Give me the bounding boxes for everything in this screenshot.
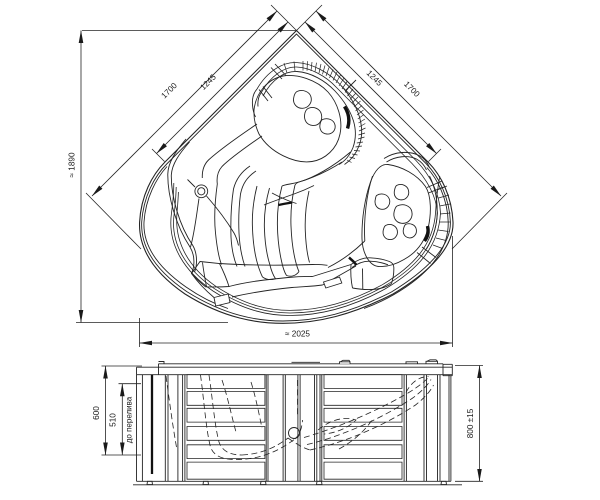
- svg-text:800 ±15: 800 ±15: [466, 408, 475, 438]
- svg-text:600: 600: [92, 406, 101, 420]
- svg-text:≈ 1890: ≈ 1890: [68, 152, 77, 177]
- svg-text:510: 510: [109, 413, 118, 427]
- svg-text:до перелива: до перелива: [125, 396, 134, 443]
- svg-text:1700: 1700: [160, 81, 180, 101]
- svg-text:1245: 1245: [199, 72, 219, 92]
- svg-text:1700: 1700: [402, 80, 422, 100]
- svg-text:1245: 1245: [365, 69, 385, 89]
- svg-text:≈ 2025: ≈ 2025: [285, 330, 310, 339]
